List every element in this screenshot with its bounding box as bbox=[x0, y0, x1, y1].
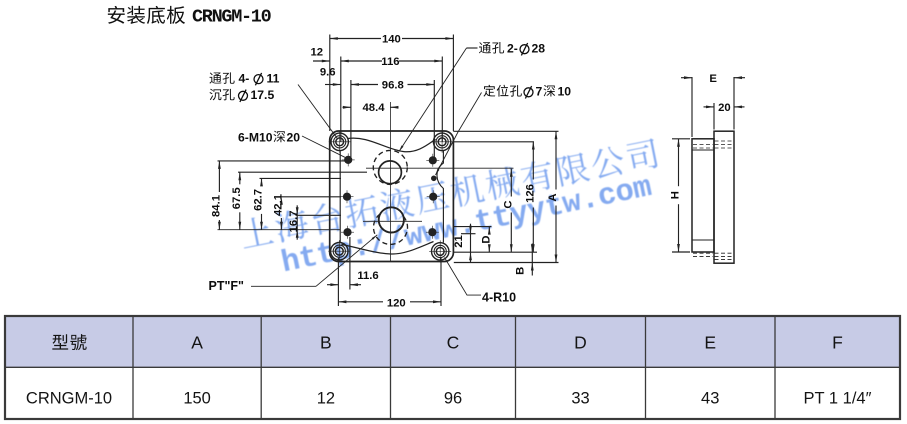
svg-text:D: D bbox=[480, 235, 492, 243]
svg-text:C: C bbox=[502, 200, 514, 208]
svg-text:67.5: 67.5 bbox=[231, 187, 243, 209]
svg-text:CRNGM-10: CRNGM-10 bbox=[192, 7, 272, 28]
svg-text:96.8: 96.8 bbox=[382, 79, 404, 91]
svg-text:16.7: 16.7 bbox=[288, 210, 300, 232]
svg-text:11: 11 bbox=[267, 72, 280, 86]
svg-text:9.6: 9.6 bbox=[320, 67, 336, 79]
svg-text:42.1: 42.1 bbox=[272, 194, 284, 216]
svg-text:20: 20 bbox=[718, 102, 731, 114]
svg-text:43: 43 bbox=[701, 390, 719, 408]
svg-text:62.7: 62.7 bbox=[253, 189, 265, 211]
svg-text:126: 126 bbox=[524, 184, 536, 203]
svg-text:4-R10: 4-R10 bbox=[482, 291, 516, 305]
svg-text:17.5: 17.5 bbox=[251, 88, 275, 102]
svg-text:84.1: 84.1 bbox=[210, 195, 222, 217]
svg-text:21: 21 bbox=[453, 235, 465, 248]
svg-text:A: A bbox=[191, 333, 203, 353]
svg-text:96: 96 bbox=[444, 390, 462, 408]
svg-text:C: C bbox=[447, 333, 460, 353]
svg-text:7: 7 bbox=[536, 85, 543, 99]
svg-text:12: 12 bbox=[311, 47, 324, 59]
svg-text:150: 150 bbox=[183, 390, 211, 408]
svg-text:B: B bbox=[515, 267, 527, 275]
svg-text:A: A bbox=[547, 193, 559, 201]
svg-text:20: 20 bbox=[287, 130, 301, 144]
svg-text:12: 12 bbox=[317, 390, 335, 408]
svg-text:10: 10 bbox=[558, 85, 572, 99]
svg-text:PT 1 1/4″: PT 1 1/4″ bbox=[804, 390, 872, 408]
svg-text:33: 33 bbox=[571, 390, 589, 408]
svg-text:11.6: 11.6 bbox=[357, 270, 378, 282]
svg-text:F: F bbox=[832, 333, 843, 353]
svg-text:D: D bbox=[574, 333, 587, 353]
svg-text:120: 120 bbox=[387, 298, 406, 310]
svg-text:48.4: 48.4 bbox=[363, 102, 386, 114]
svg-text:H: H bbox=[670, 191, 682, 199]
svg-text:E: E bbox=[704, 333, 716, 353]
svg-text:28: 28 bbox=[532, 41, 546, 55]
svg-text:PT"F": PT"F" bbox=[209, 279, 245, 293]
svg-text:B: B bbox=[320, 333, 332, 353]
svg-text:116: 116 bbox=[381, 56, 399, 68]
svg-text:CRNGM-10: CRNGM-10 bbox=[26, 390, 112, 408]
svg-text:4-: 4- bbox=[239, 72, 250, 86]
svg-text:E: E bbox=[709, 73, 717, 85]
svg-text:140: 140 bbox=[382, 33, 401, 45]
svg-text:2-: 2- bbox=[507, 41, 518, 55]
svg-text:6-M10: 6-M10 bbox=[238, 130, 273, 144]
